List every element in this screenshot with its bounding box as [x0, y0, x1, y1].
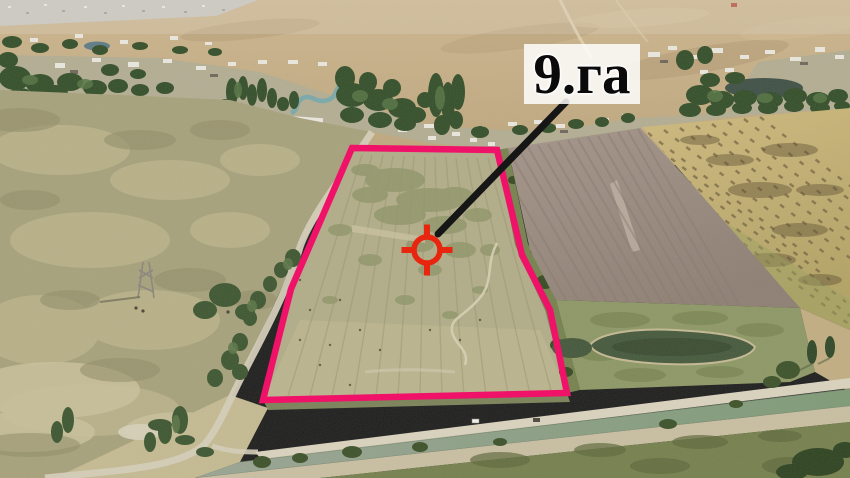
- aerial-photo: 9.га: [0, 0, 850, 478]
- area-label: 9.га: [524, 44, 640, 104]
- landscape-scene: [0, 0, 850, 478]
- area-label-text: 9.га: [533, 46, 630, 103]
